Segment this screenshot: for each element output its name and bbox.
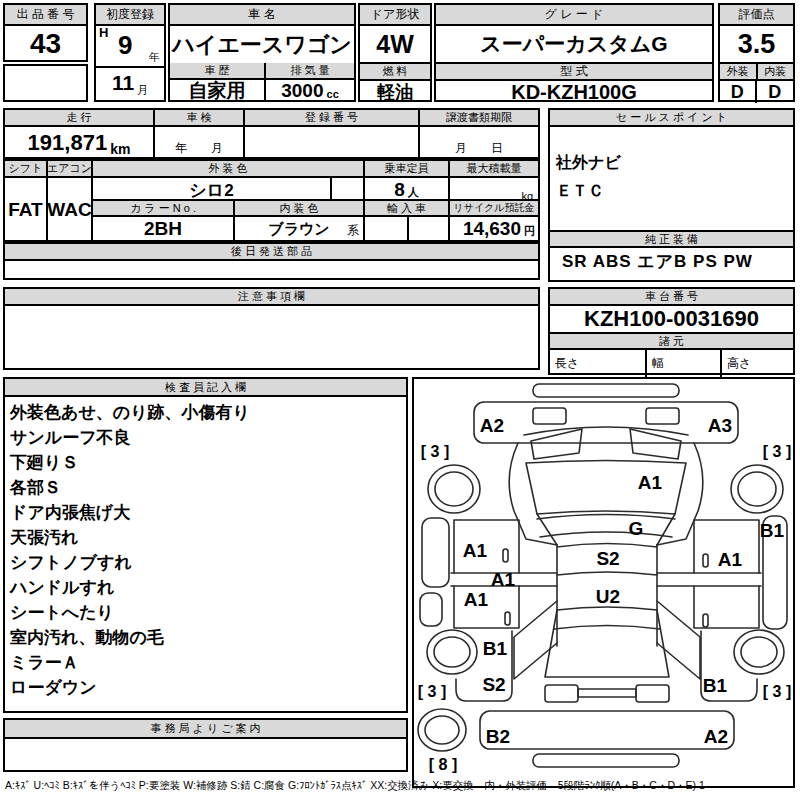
lot-number-value: 43 [5, 26, 86, 62]
month-value: 11 [112, 71, 134, 95]
displacement-value: 3000cc [266, 80, 354, 102]
empty-cell [3, 64, 88, 102]
door-shape-value: 4W [360, 26, 430, 62]
model-code-value: KD-KZH100G [436, 81, 712, 103]
interior-color-value: ブラウン 系 [235, 217, 363, 241]
inspector-note: 各部Ｓ [10, 475, 406, 500]
mileage-unit: km [110, 141, 130, 159]
shift-label: シフト [5, 159, 46, 178]
capacity-cell: 乗車定員 8人 [365, 159, 450, 201]
shift-value: FAT [5, 178, 46, 242]
recycle-deposit-value: 14,630円 [450, 217, 538, 241]
mileage-label: 走 行 [5, 110, 153, 127]
damage-mark: A1 [491, 569, 515, 591]
interior-grade: D [757, 81, 794, 103]
chassis-number-value: KZH100-0031690 [550, 306, 793, 332]
max-load-cell: 最大積載量 kg [450, 159, 540, 201]
inspector-note: ミラーＡ [10, 650, 406, 675]
mileage-value: 191,871km [5, 127, 153, 159]
recycle-deposit-label: リサイクル預託金 [450, 201, 538, 217]
sales-point-item: 社外ナビ [556, 149, 793, 177]
inspector-note: 下廻りＳ [10, 450, 406, 475]
displacement-unit: cc [327, 88, 339, 102]
shaken-value: 年 月 [155, 127, 243, 157]
max-load-unit: kg [450, 178, 538, 202]
history-value: 自家用 [170, 80, 264, 102]
inspector-notes-list: 外装色あせ、のり跡、小傷有りサンルーフ不良下廻りＳ各部Ｓドア内張焦げ大天張汚れシ… [5, 397, 406, 700]
color-no-value: 2BH [93, 217, 233, 241]
car-name-label: 車 名 [170, 5, 354, 26]
first-registration-label: 初度登録 [96, 5, 164, 26]
office-notice-cell: 事 務 局 よ り ご 案 内 [3, 718, 408, 772]
sales-point-item: ＥＴＣ [556, 177, 793, 205]
capacity-unit: 人 [408, 185, 419, 202]
width-label: 幅 [647, 350, 722, 377]
registration-number-label: 登 録 番 号 [245, 110, 418, 127]
interior-color-label: 内 装 色 [235, 201, 363, 217]
exterior-grade: D [720, 81, 757, 103]
height-label: 高さ [722, 350, 793, 377]
damage-mark: [ 8 ] [429, 756, 457, 774]
chassis-number-label: 車 台 番 号 [550, 289, 793, 306]
spec-label: 諸 元 [550, 332, 793, 350]
aircon-value: WAC [48, 178, 91, 242]
damage-mark: A1 [638, 472, 662, 494]
damage-mark: U2 [596, 586, 620, 608]
model-code-label: 型 式 [436, 62, 712, 81]
car-name-value: ハイエースワゴン [170, 26, 354, 63]
first-registration-cell: 初度登録 H 9 年 11 月 [94, 3, 166, 102]
inspector-note: 室内汚れ、動物の毛 [10, 625, 406, 650]
exterior-color-value: シロ2 [93, 178, 330, 202]
later-shipped-parts-label: 後 日 発 送 部 品 [5, 242, 538, 261]
year-value: 9 [118, 30, 132, 61]
damage-mark: B1 [483, 638, 507, 660]
shaken-cell: 車 検 年 月 [155, 108, 245, 159]
fuel-value: 軽油 [360, 81, 430, 103]
damage-mark: [ 3 ] [421, 443, 449, 461]
inspector-note: シートへたり [10, 600, 406, 625]
inspector-note: ハンドルすれ [10, 575, 406, 600]
damage-mark: A1 [464, 589, 488, 611]
grade-label: グ レ ー ド [436, 5, 712, 26]
damage-mark: [ 3 ] [763, 443, 791, 461]
caution-cell: 注 意 事 項 欄 [3, 287, 540, 370]
score-value: 3.5 [720, 26, 793, 62]
inspector-note: 外装色あせ、のり跡、小傷有り [10, 400, 406, 425]
first-registration-month: 11 月 [96, 68, 164, 100]
year-suffix: 年 [149, 50, 160, 65]
color-no-label: カ ラ ー N o . [93, 201, 233, 217]
damage-mark: [ 3 ] [763, 683, 791, 701]
damage-marks-layer: A2A3[ 3 ][ 3 ]A1GS2U2A1A1A1B1S2A1B1B1B2A… [414, 379, 793, 786]
interior-label: 内装 [758, 64, 794, 79]
door-shape-cell: ドア形状 4W 燃 料 軽油 [358, 3, 432, 102]
aircon-label: エアコン [48, 159, 91, 178]
lot-number-cell: 出 品 番 号 43 [3, 3, 88, 62]
office-notice-label: 事 務 局 よ り ご 案 内 [5, 720, 406, 739]
door-shape-label: ドア形状 [360, 5, 430, 26]
damage-mark: B2 [486, 726, 510, 748]
inspector-notes-label: 検 査 員 記 入 欄 [5, 379, 406, 397]
damage-mark: A2 [480, 415, 504, 437]
exterior-label: 外装 [720, 64, 758, 79]
inspector-note: 天張汚れ [10, 525, 406, 550]
later-shipped-parts-cell: 後 日 発 送 部 品 [3, 242, 540, 280]
transfer-deadline-cell: 譲渡書類期限 月 日 [420, 108, 540, 159]
damage-mark: B1 [703, 675, 727, 697]
capacity-label: 乗車定員 [365, 161, 448, 178]
registration-number-cell: 登 録 番 号 [245, 108, 420, 159]
inspector-note: シフトノブすれ [10, 550, 406, 575]
aircon-cell: エアコン WAC [48, 159, 93, 242]
inspector-note: ドア内張焦げ大 [10, 500, 406, 525]
damage-mark: A1 [463, 540, 487, 562]
legend-text: A:ｷｽﾞ U:ﾍｺﾐ B:ｷｽﾞを伴うﾍｺﾐ P:要塗装 W:補修跡 S:錆 … [5, 779, 797, 793]
length-label: 長さ [550, 350, 647, 377]
color-no-cell: カ ラ ー N o . 2BH [93, 201, 235, 242]
oem-equipment-label: 純 正 装 備 [550, 230, 793, 248]
exterior-color-cell: 外 装 色 シロ2 [93, 159, 365, 201]
auction-sheet: 出 品 番 号 43 初度登録 H 9 年 11 月 車 名 ハイエースワゴン … [0, 0, 800, 800]
lot-number-label: 出 品 番 号 [5, 5, 86, 26]
fuel-label: 燃 料 [360, 62, 430, 81]
damage-mark: A3 [708, 415, 732, 437]
damage-mark: [ 3 ] [418, 683, 446, 701]
inspector-notes-cell: 検 査 員 記 入 欄 外装色あせ、のり跡、小傷有りサンルーフ不良下廻りＳ各部Ｓ… [3, 377, 408, 713]
damage-mark: B1 [760, 520, 784, 542]
damage-mark: S2 [482, 674, 505, 696]
damage-mark: S2 [596, 548, 619, 570]
divider [330, 176, 332, 201]
damage-mark: A2 [704, 726, 728, 748]
max-load-label: 最大積載量 [450, 161, 538, 178]
interior-color-cell: 内 装 色 ブラウン 系 [235, 201, 365, 242]
sales-point-list: 社外ナビＥＴＣ [550, 127, 793, 230]
chassis-number-cell: 車 台 番 号 KZH100-0031690 諸 元 長さ 幅 高さ [548, 287, 795, 375]
grade-cell: グ レ ー ド スーパーカスタムG 型 式 KD-KZH100G [434, 3, 714, 102]
transfer-deadline-label: 譲渡書類期限 [420, 110, 538, 127]
car-name-cell: 車 名 ハイエースワゴン 車 歴 自家用 排 気 量 3000cc [168, 3, 356, 102]
capacity-value: 8人 [365, 178, 448, 202]
recycle-deposit-cell: リサイクル預託金 14,630円 [450, 201, 540, 242]
damage-mark: G [629, 518, 644, 540]
displacement-label: 排 気 量 [266, 63, 354, 80]
damage-mark: A1 [718, 549, 742, 571]
mileage-cell: 走 行 191,871km [3, 108, 155, 159]
recycle-deposit-unit: 円 [524, 224, 535, 241]
score-cell: 評価点 3.5 外装 内装 D D [718, 3, 795, 102]
damage-diagram: A2A3[ 3 ][ 3 ]A1GS2U2A1A1A1B1S2A1B1B1B2A… [412, 377, 795, 788]
sales-point-cell: セ ー ル ス ポ イ ン ト 社外ナビＥＴＣ 純 正 装 備 SR ABS エ… [548, 108, 795, 282]
exterior-color-label: 外 装 色 [93, 161, 363, 178]
import-cell: 輸 入 車 [365, 201, 450, 242]
shaken-label: 車 検 [155, 110, 243, 127]
grade-value: スーパーカスタムG [436, 26, 712, 62]
sales-point-label: セ ー ル ス ポ イ ン ト [550, 110, 793, 127]
interior-color-suffix: 系 [347, 222, 359, 239]
first-registration-year: H 9 年 [96, 24, 164, 68]
month-suffix: 月 [137, 83, 148, 98]
inspector-note: ローダウン [10, 675, 406, 700]
divider [407, 215, 409, 240]
transfer-deadline-value: 月 日 [420, 127, 538, 157]
caution-label: 注 意 事 項 欄 [5, 289, 538, 306]
shift-cell: シフト FAT [3, 159, 48, 242]
score-label: 評価点 [720, 5, 793, 26]
era-letter: H [99, 25, 108, 40]
oem-equipment-value: SR ABS エアB PS PW [550, 248, 793, 274]
inspector-note: サンルーフ不良 [10, 425, 406, 450]
